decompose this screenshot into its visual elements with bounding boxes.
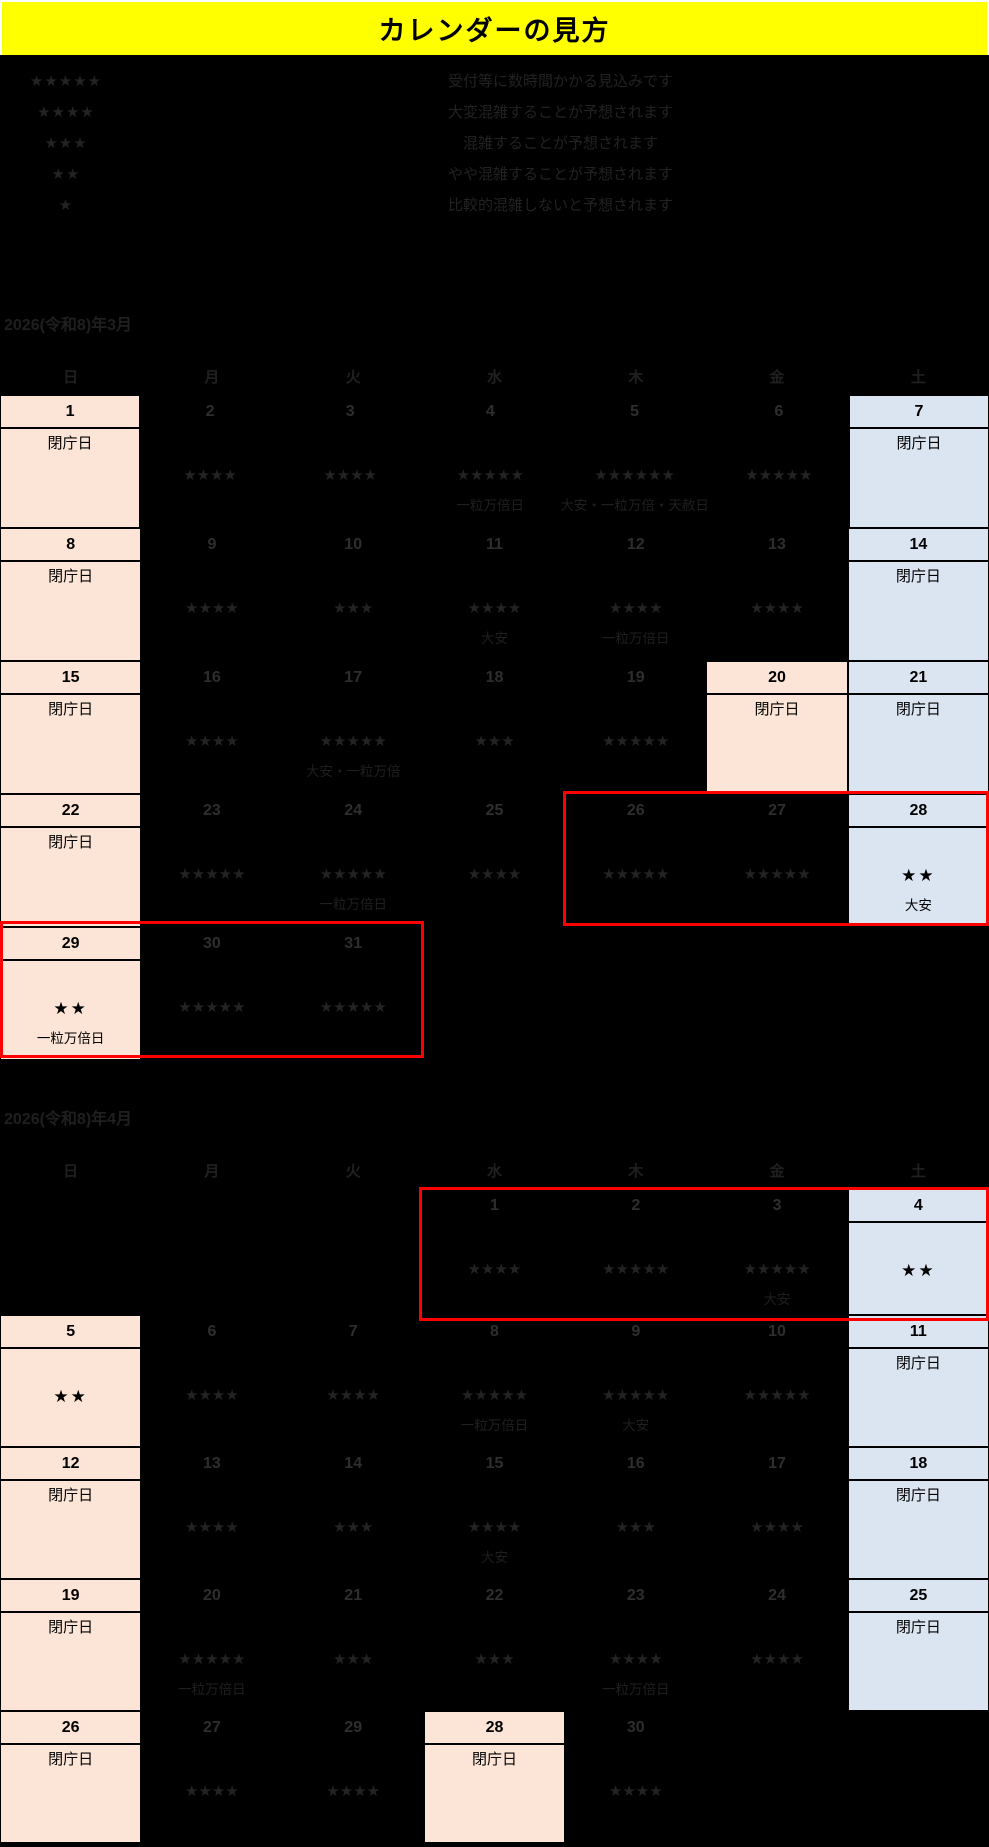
lucky-day-note: 大安 [849,894,988,922]
day-details: ★★大安 [849,828,988,922]
month-title: 2026(令和8)年3月 [4,316,989,336]
lucky-day-note: 一粒万倍日 [283,893,424,921]
day-number: 18 [424,661,565,694]
day-number: 21 [283,1579,424,1612]
calendar-cell: 6★★★★★ [709,395,849,528]
calendar-cell: 7★★★★ [283,1315,424,1447]
day-number: 1 [1,396,139,429]
calendar-cell: 17★★★★ [706,1447,847,1579]
crowd-star-rating: ★★★ [424,724,565,760]
crowd-star-rating: ★★★★★ [283,724,424,760]
weekday-header: 日月火水木金土 [0,360,989,395]
day-details: 閉庁日 [849,562,988,656]
day-details [848,960,989,1054]
day-details: 閉庁日 [1,1745,140,1839]
empty-cell [848,927,989,1060]
day-number: 12 [565,528,706,561]
crowd-star-rating: ★★★ [424,1642,565,1678]
legend-row: ★★★★大変混雑することが予想されます [0,96,989,127]
calendar-cell: 21閉庁日 [848,661,989,794]
day-details: ★★★★ [141,1348,282,1442]
day-details: ★★★ [283,561,424,655]
calendar-cell: 15閉庁日 [0,661,141,794]
closed-day-label: 閉庁日 [1,1483,140,1511]
day-number: 20 [707,662,846,695]
crowd-star-rating: ★★★★★ [141,990,282,1026]
weekday-label: 火 [283,1154,424,1189]
day-number: 16 [141,661,282,694]
weekday-label: 木 [565,360,706,395]
calendar-cell: 2★★★★★ [565,1189,706,1315]
star-legend: ★★★★★受付等に数時間かかる見込みです★★★★大変混雑することが予想されます★… [0,55,989,220]
calendar-cell: 9★★★★★大安 [565,1315,706,1447]
day-number [0,1189,141,1222]
calendar-cell: 10★★★ [283,528,424,661]
calendar-cell: 25★★★★ [424,794,565,927]
calendar-cell: 5★★ [0,1315,141,1447]
day-number: 8 [1,529,140,562]
legend-description: 比較的混雑しないと予想されます [132,194,989,215]
day-details: 閉庁日 [1,429,139,523]
day-details: ★★★★★ [565,827,706,921]
day-number: 22 [424,1579,565,1612]
crowd-star-rating: ★★★★ [283,1774,424,1810]
day-details: ★★★★ [141,694,282,788]
calendar-cell: 2★★★★ [140,395,280,528]
calendar-cell: 30★★★★ [565,1711,706,1843]
crowd-star-rating: ★★★★ [141,1378,282,1414]
day-details: ★★★ [565,1480,706,1574]
day-details: ★★ [849,1223,988,1317]
calendar-cell: 15★★★★大安 [424,1447,565,1579]
weekday-header: 日月火水木金土 [0,1154,989,1189]
crowd-star-rating: ★★★ [283,591,424,627]
day-number: 12 [1,1448,140,1481]
closed-day-label: 閉庁日 [1,697,140,725]
calendar-cell: 18★★★ [424,661,565,794]
calendar-cell: 7閉庁日 [849,395,989,528]
closed-day-label: 閉庁日 [1,1747,140,1775]
calendar-cell: 24★★★★ [706,1579,847,1711]
calendar-cell: 3★★★★ [280,395,420,528]
day-details: 閉庁日 [1,828,140,922]
day-details: ★★★★ [283,1348,424,1442]
day-details: 閉庁日 [849,1349,988,1443]
legend-description: 受付等に数時間かかる見込みです [132,70,989,91]
day-details: 閉庁日 [1,1613,140,1707]
day-number: 31 [283,927,424,960]
day-number: 4 [420,395,560,428]
closed-day-label: 閉庁日 [1,564,140,592]
day-details: ★★★★★ [565,694,706,788]
legend-row: ★★やや混雑することが予想されます [0,158,989,189]
crowd-star-rating: ★★★ [565,1510,706,1546]
weekday-label: 木 [565,1154,706,1189]
day-details: ★★★★一粒万倍日 [565,561,706,655]
day-details: ★★★★大安 [424,1480,565,1574]
day-number: 30 [565,1711,706,1744]
day-details: ★★★ [283,1612,424,1706]
crowd-star-rating: ★★★ [283,1642,424,1678]
weekday-label: 金 [706,1154,847,1189]
day-number [706,1711,847,1744]
day-details: ★★★★★大安・一粒万倍 [283,694,424,788]
crowd-star-rating: ★★★★ [141,591,282,627]
day-details: ★★★★一粒万倍日 [565,1612,706,1706]
calendar-week: 12閉庁日13★★★★14★★★15★★★★大安16★★★17★★★★18閉庁日 [0,1447,989,1579]
day-number: 28 [849,795,988,828]
day-details: ★★★★ [140,428,280,522]
day-number: 11 [849,1316,988,1349]
calendar-cell: 27★★★★ [141,1711,282,1843]
day-details: ★★★★★一粒万倍日 [141,1612,282,1706]
closed-day-label: 閉庁日 [1,1615,140,1643]
day-number: 15 [424,1447,565,1480]
day-details: ★★★★★一粒万倍日 [424,1348,565,1442]
crowd-star-rating: ★★★★★ [565,724,706,760]
day-number: 6 [141,1315,282,1348]
calendar-cell: 10★★★★★ [706,1315,847,1447]
day-details: ★★★ [283,1480,424,1574]
weekday-label: 月 [141,1154,282,1189]
day-details [141,1222,282,1316]
calendar-cell: 20★★★★★一粒万倍日 [141,1579,282,1711]
day-number: 26 [565,794,706,827]
calendar-cell: 16★★★ [565,1447,706,1579]
calendar-cell: 29★★一粒万倍日 [0,927,141,1060]
crowd-star-rating: ★★★★★ [565,857,706,893]
calendar-cell: 8★★★★★一粒万倍日 [424,1315,565,1447]
crowd-star-rating: ★★★★ [565,1774,706,1810]
legend-star-rating: ★ [0,196,132,214]
day-number: 15 [1,662,140,695]
calendar-cell: 22閉庁日 [0,794,141,927]
weekday-label: 水 [424,360,565,395]
day-details: ★★★★ [141,1480,282,1574]
day-details: 閉庁日 [1,695,140,789]
day-details: ★★★★ [424,827,565,921]
legend-row: ★★★混雑することが予想されます [0,127,989,158]
day-number: 3 [280,395,420,428]
calendar-cell: 12閉庁日 [0,1447,141,1579]
day-details: ★★★★★ [706,827,847,921]
calendar-cell: 14★★★ [283,1447,424,1579]
crowd-star-rating: ★★ [849,858,988,894]
calendar-cell: 13★★★★ [706,528,847,661]
day-number: 17 [283,661,424,694]
day-number: 25 [849,1580,988,1613]
calendar-cell: 12★★★★一粒万倍日 [565,528,706,661]
calendar-cell: 29★★★★ [283,1711,424,1843]
day-number [706,927,847,960]
day-number: 5 [1,1316,140,1349]
calendar-cell: 6★★★★ [141,1315,282,1447]
crowd-star-rating: ★★★★ [565,1642,706,1678]
day-number: 10 [706,1315,847,1348]
day-number: 1 [424,1189,565,1222]
day-number: 27 [141,1711,282,1744]
crowd-star-rating: ★★★★ [280,458,420,494]
lucky-day-note: 大安 [706,1288,847,1316]
calendar-cell: 4★★★★★一粒万倍日 [420,395,560,528]
crowd-star-rating: ★★★★★ [141,857,282,893]
day-details: ★★★ [424,694,565,788]
day-number: 22 [1,795,140,828]
day-number: 13 [706,528,847,561]
crowd-star-rating: ★★★★ [565,591,706,627]
calendar-week: 8閉庁日9★★★★10★★★11★★★★大安12★★★★一粒万倍日13★★★★1… [0,528,989,661]
crowd-star-rating: ★★★★ [283,1378,424,1414]
crowd-star-rating: ★★★★ [141,1510,282,1546]
crowd-star-rating: ★★ [1,1379,140,1415]
empty-cell [424,927,565,1060]
day-details [706,1744,847,1838]
day-details: 閉庁日 [849,1481,988,1575]
weekday-label: 金 [706,360,847,395]
day-details: 閉庁日 [1,562,140,656]
crowd-star-rating: ★★★★★★ [560,458,709,494]
crowd-star-rating: ★★★ [283,1510,424,1546]
empty-cell [565,927,706,1060]
day-details: ★★★★★ [709,428,849,522]
empty-cell [848,1711,989,1843]
lucky-day-note: 一粒万倍日 [424,1414,565,1442]
day-details [424,960,565,1054]
crowd-star-rating: ★★★★★ [706,1378,847,1414]
legend-star-rating: ★★ [0,165,132,183]
calendar-week: 26閉庁日27★★★★29★★★★28閉庁日30★★★★ [0,1711,989,1843]
legend-row: ★★★★★受付等に数時間かかる見込みです [0,65,989,96]
day-number: 14 [849,529,988,562]
crowd-star-rating: ★★★★★ [565,1378,706,1414]
day-number: 30 [141,927,282,960]
day-details: ★★★★★一粒万倍日 [420,428,560,522]
empty-cell [706,927,847,1060]
crowd-star-rating: ★★★★ [706,591,847,627]
empty-cell [0,1189,141,1315]
day-details [848,1744,989,1838]
day-details: ★★★★ [706,1480,847,1574]
day-number: 26 [1,1712,140,1745]
day-number: 29 [283,1711,424,1744]
day-number: 17 [706,1447,847,1480]
crowd-star-rating: ★★★★★ [424,1378,565,1414]
calendar-cell: 13★★★★ [141,1447,282,1579]
calendar-cell: 26閉庁日 [0,1711,141,1843]
crowd-star-rating: ★★★★ [424,591,565,627]
day-number: 7 [283,1315,424,1348]
calendar-cell: 11閉庁日 [848,1315,989,1447]
calendar-cell: 18閉庁日 [848,1447,989,1579]
day-number: 16 [565,1447,706,1480]
weekday-label: 火 [283,360,424,395]
legend-star-rating: ★★★ [0,134,132,152]
calendar-cell: 25閉庁日 [848,1579,989,1711]
day-number: 23 [565,1579,706,1612]
day-details: ★★★★★大安 [565,1348,706,1442]
closed-day-label: 閉庁日 [1,431,139,459]
day-details: 閉庁日 [850,429,988,523]
calendar-cell: 28★★大安 [848,794,989,927]
day-number: 2 [140,395,280,428]
calendar-cell: 19★★★★★ [565,661,706,794]
day-details: ★★★★ [280,428,420,522]
legend-star-rating: ★★★★ [0,103,132,121]
day-details: ★★★★★ [141,960,282,1054]
day-number: 27 [706,794,847,827]
calendar-week: 1閉庁日2★★★★3★★★★4★★★★★一粒万倍日5★★★★★★大安・一粒万倍・… [0,395,989,528]
calendar-cell: 31★★★★★ [283,927,424,1060]
calendar-cell: 4★★ [848,1189,989,1315]
crowd-star-rating: ★★★★★ [420,458,560,494]
lucky-day-note: 大安 [565,1414,706,1442]
day-details: 閉庁日 [849,1613,988,1707]
legend-description: 混雑することが予想されます [132,132,989,153]
closed-day-label: 閉庁日 [850,431,988,459]
crowd-star-rating: ★★★★ [706,1642,847,1678]
day-details: ★★★★ [424,1222,565,1316]
calendar-week: 22閉庁日23★★★★★24★★★★★一粒万倍日25★★★★26★★★★★27★… [0,794,989,927]
closed-day-label: 閉庁日 [849,1615,988,1643]
day-details: ★★★ [424,1612,565,1706]
calendar-cell: 11★★★★大安 [424,528,565,661]
day-number: 4 [849,1190,988,1223]
closed-day-label: 閉庁日 [849,1483,988,1511]
closed-day-label: 閉庁日 [849,697,988,725]
calendar-cell: 20閉庁日 [706,661,847,794]
empty-cell [706,1711,847,1843]
crowd-star-rating: ★★★★ [141,1774,282,1810]
day-details: ★★★★★★大安・一粒万倍・天赦日 [560,428,709,522]
lucky-day-note: 大安 [424,627,565,655]
calendar-cell: 16★★★★ [141,661,282,794]
day-details: ★★★★ [141,1744,282,1838]
calendar-cell: 23★★★★一粒万倍日 [565,1579,706,1711]
calendar-cell: 17★★★★★大安・一粒万倍 [283,661,424,794]
day-number: 8 [424,1315,565,1348]
day-details: ★★★★ [283,1744,424,1838]
weekday-label: 水 [424,1154,565,1189]
weekday-label: 土 [848,360,989,395]
day-number: 28 [425,1712,564,1745]
closed-day-label: 閉庁日 [1,830,140,858]
day-number: 7 [850,396,988,429]
lucky-day-note: 一粒万倍日 [565,627,706,655]
calendar-cell: 22★★★ [424,1579,565,1711]
day-number: 20 [141,1579,282,1612]
crowd-star-rating: ★★★★ [140,458,280,494]
day-number: 25 [424,794,565,827]
calendar-cell: 1★★★★ [424,1189,565,1315]
crowd-star-rating: ★★★★★ [283,857,424,893]
calendar-week: 5★★6★★★★7★★★★8★★★★★一粒万倍日9★★★★★大安10★★★★★1… [0,1315,989,1447]
day-details: ★★★★ [565,1744,706,1838]
calendar-week: 29★★一粒万倍日30★★★★★31★★★★★ [0,927,989,1060]
day-number: 24 [706,1579,847,1612]
day-number: 2 [565,1189,706,1222]
calendar-cell: 21★★★ [283,1579,424,1711]
lucky-day-note: 大安・一粒万倍 [283,760,424,788]
legend-description: やや混雑することが予想されます [132,163,989,184]
day-details: 閉庁日 [707,695,846,789]
weekday-label: 土 [848,1154,989,1189]
day-details: ★★★★大安 [424,561,565,655]
day-details: ★★★★★ [706,1348,847,1442]
day-details: ★★★★★大安 [706,1222,847,1316]
day-details: ★★一粒万倍日 [1,961,140,1055]
calendar-cell: 26★★★★★ [565,794,706,927]
crowd-star-rating: ★★★★★ [141,1642,282,1678]
weekday-label: 月 [141,360,282,395]
legend-description: 大変混雑することが予想されます [132,101,989,122]
calendar-cell: 8閉庁日 [0,528,141,661]
empty-cell [283,1189,424,1315]
day-details: ★★★★ [141,561,282,655]
crowd-star-rating: ★★★★ [424,1252,565,1288]
crowd-star-rating: ★★★★ [424,857,565,893]
day-details: ★★★★ [706,561,847,655]
day-number: 21 [849,662,988,695]
day-number [848,1711,989,1744]
day-details [565,960,706,1054]
day-number: 10 [283,528,424,561]
calendar-month: 2026(令和8)年4月日月火水木金土1★★★★2★★★★★3★★★★★大安4★… [0,1110,989,1843]
lucky-day-note: 大安・一粒万倍・天赦日 [560,494,709,522]
lucky-day-note: 一粒万倍日 [1,1027,140,1055]
day-number: 18 [849,1448,988,1481]
page-title: カレンダーの見方 [379,9,611,48]
day-number: 13 [141,1447,282,1480]
day-number: 23 [141,794,282,827]
crowd-star-rating: ★★★★★ [706,1252,847,1288]
page-title-band: カレンダーの見方 [0,0,989,55]
empty-cell [141,1189,282,1315]
day-number: 24 [283,794,424,827]
day-details [283,1222,424,1316]
day-details [706,960,847,1054]
day-number [283,1189,424,1222]
day-number: 9 [141,528,282,561]
calendars: 2026(令和8)年3月日月火水木金土1閉庁日2★★★★3★★★★4★★★★★一… [0,316,989,1843]
calendar-week: 15閉庁日16★★★★17★★★★★大安・一粒万倍18★★★19★★★★★20閉… [0,661,989,794]
calendar-cell: 30★★★★★ [141,927,282,1060]
calendar-cell: 23★★★★★ [141,794,282,927]
day-details: 閉庁日 [1,1481,140,1575]
calendar-cell: 28閉庁日 [424,1711,565,1843]
calendar-month: 2026(令和8)年3月日月火水木金土1閉庁日2★★★★3★★★★4★★★★★一… [0,316,989,1060]
crowd-star-rating: ★★ [849,1253,988,1289]
weekday-label: 日 [0,1154,141,1189]
day-number: 5 [560,395,709,428]
closed-day-label: 閉庁日 [849,1351,988,1379]
day-details: ★★★★ [706,1612,847,1706]
day-number: 19 [565,661,706,694]
crowd-star-rating: ★★★★ [424,1510,565,1546]
crowd-star-rating: ★★★★★ [706,857,847,893]
day-details [0,1222,141,1316]
calendar-cell: 19閉庁日 [0,1579,141,1711]
weekday-label: 日 [0,360,141,395]
day-number: 9 [565,1315,706,1348]
day-details: 閉庁日 [425,1745,564,1839]
calendar-cell: 1閉庁日 [0,395,140,528]
day-number [141,1189,282,1222]
day-number: 11 [424,528,565,561]
crowd-star-rating: ★★★★ [706,1510,847,1546]
day-details: ★★ [1,1349,140,1443]
day-details: ★★★★★ [141,827,282,921]
day-number [565,927,706,960]
